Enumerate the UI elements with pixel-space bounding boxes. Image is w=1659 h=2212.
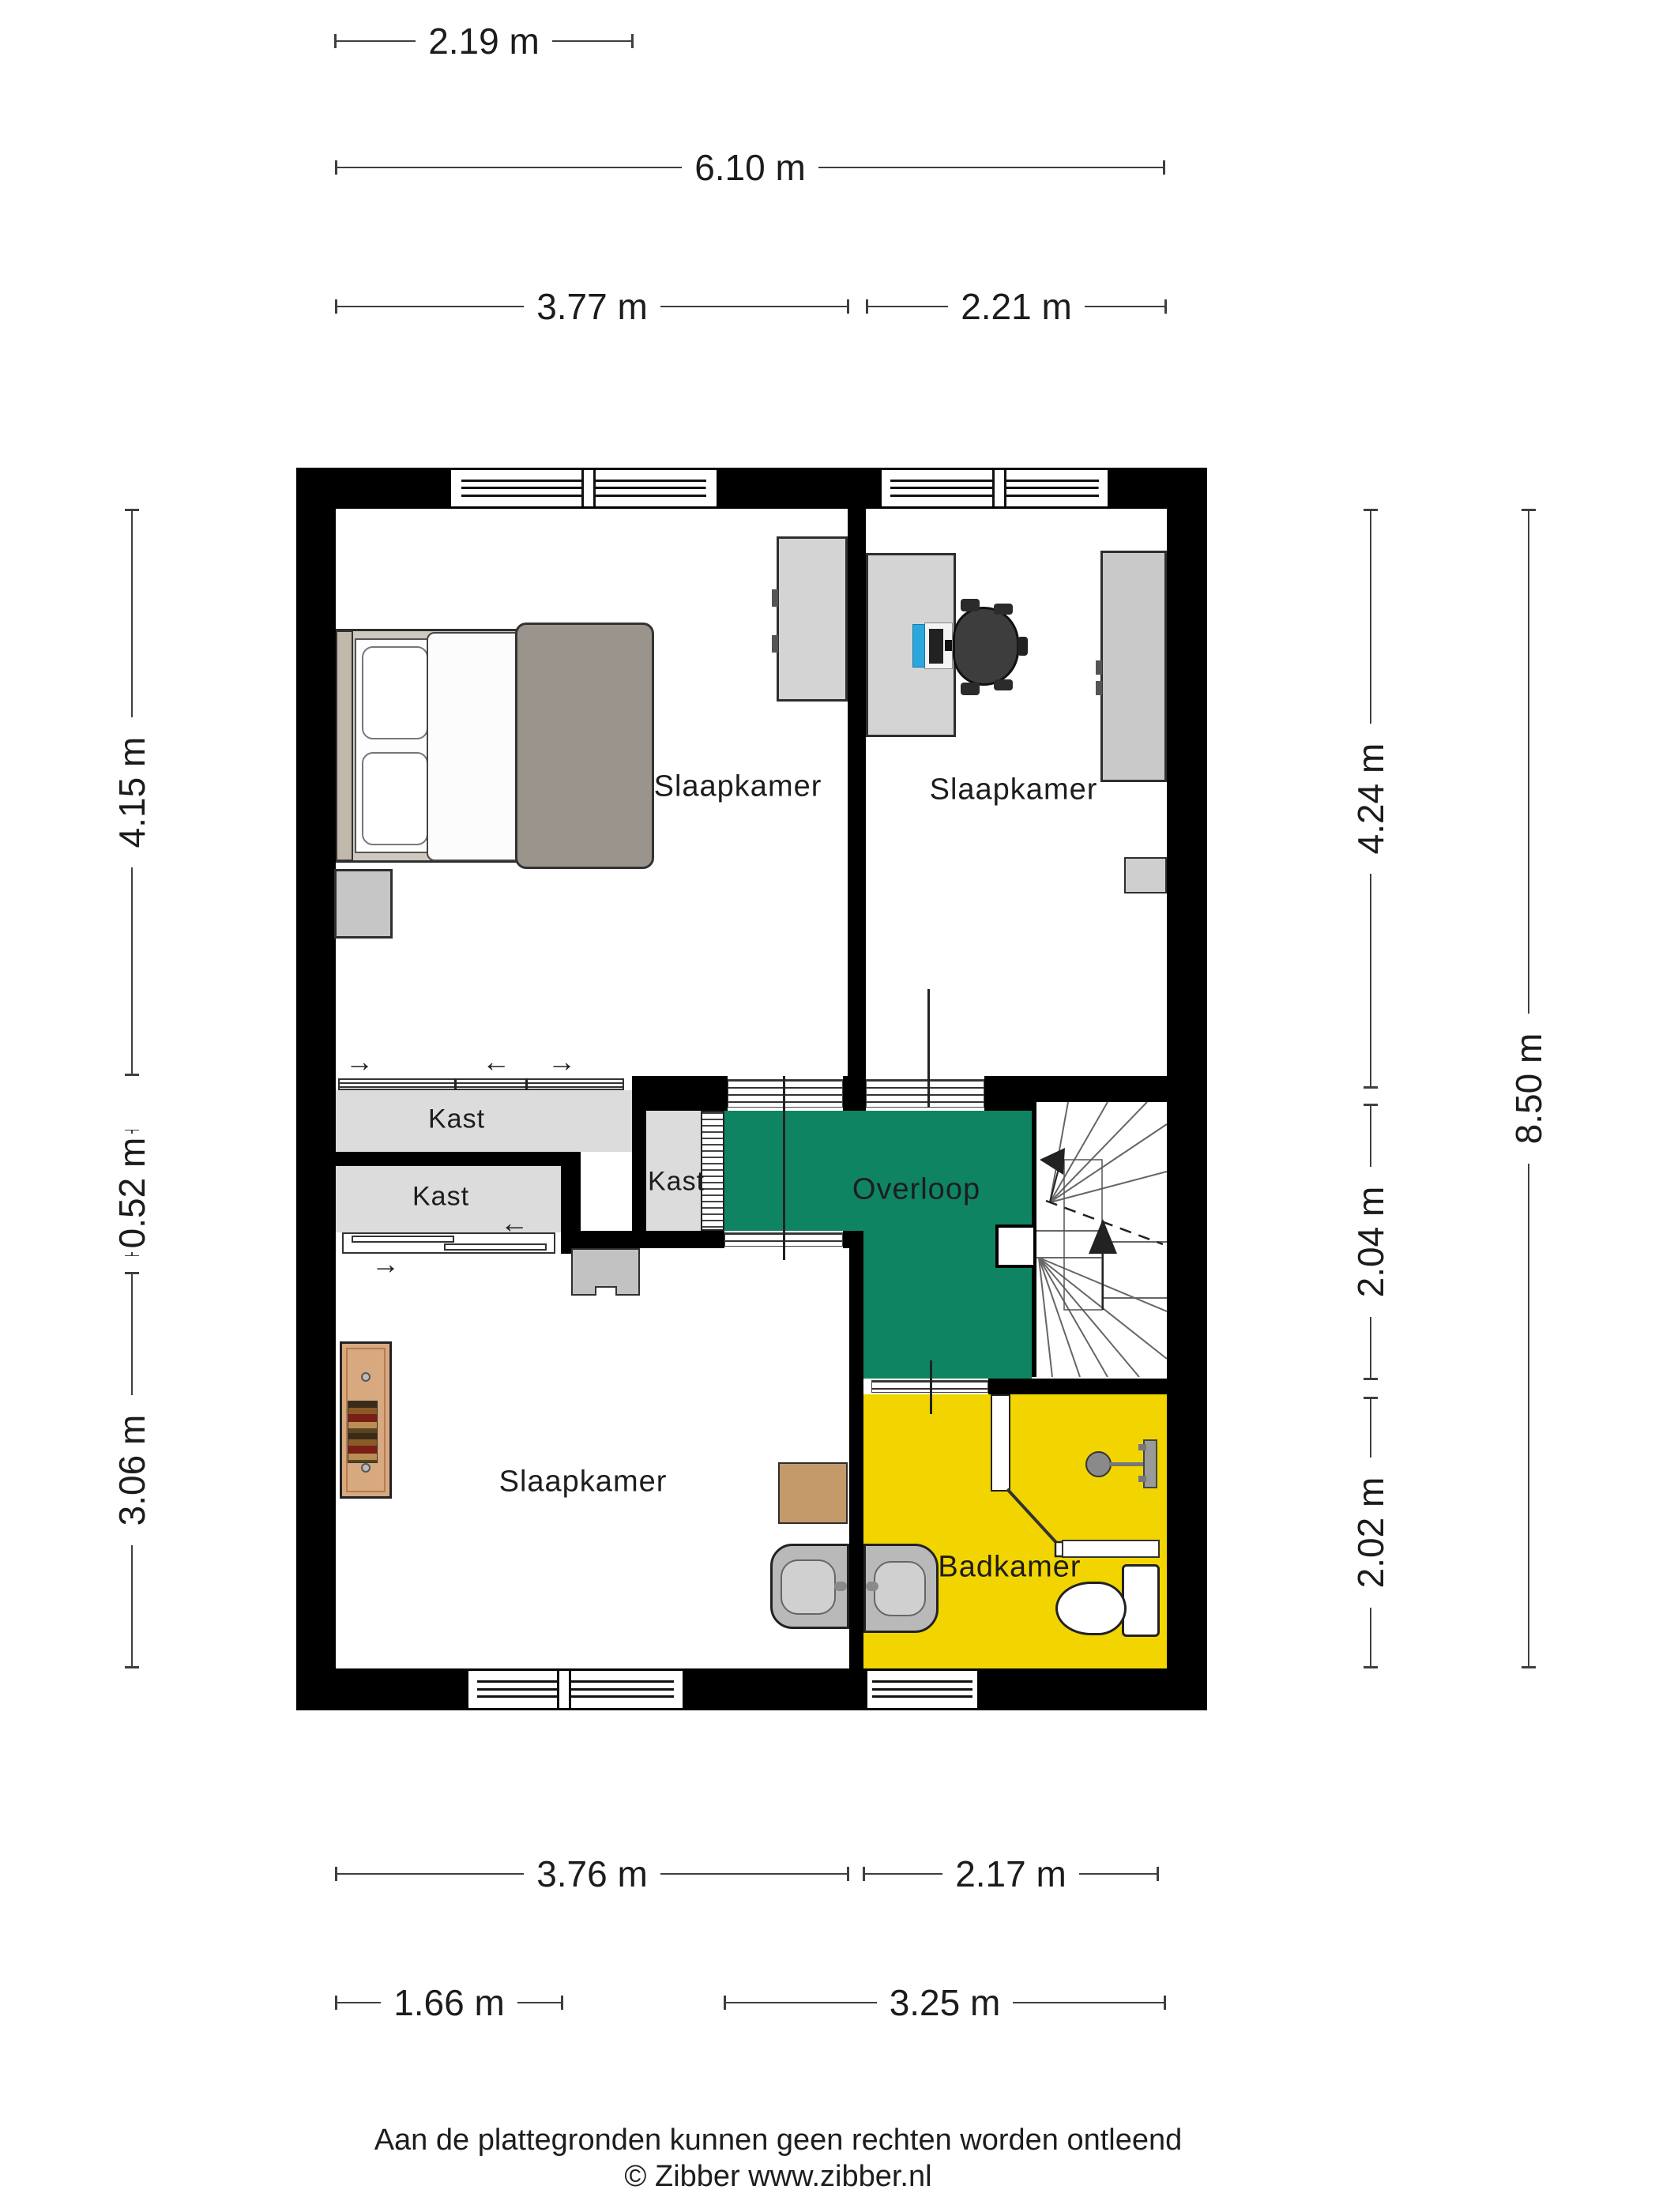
floorplan-page: 2.19 m 6.10 m 3.77 m 2.21 m 4.15 m 0.52 … (0, 0, 1659, 2212)
dim-label: 3.25 m (890, 1981, 1001, 2024)
window-bedroom-topleft (449, 468, 719, 509)
chair-armrest (994, 679, 1013, 690)
footer-disclaimer: Aan de plattegronden kunnen geen rechten… (0, 2124, 1608, 2157)
dim-label: 2.17 m (955, 1853, 1066, 1895)
wall-a-corner (843, 1076, 866, 1111)
door-leaf-line (930, 1360, 932, 1414)
bed-folded-sheet (427, 632, 518, 861)
stair-newel-post (995, 1224, 1036, 1268)
dresser-runner (348, 1401, 378, 1463)
window-glazing (872, 1680, 973, 1698)
stair-up-arrow-icon (1089, 1219, 1117, 1254)
door-bedroom1-landing (728, 1079, 843, 1108)
room-label-bedroom-bottom: Slaapkamer (499, 1465, 668, 1499)
window-mullion (992, 470, 1006, 506)
bed-pillow (362, 646, 428, 739)
slide-arrow-icon: ← (500, 1206, 529, 1240)
chair-caster (1018, 637, 1028, 656)
bed-duvet (515, 623, 654, 869)
dim-label: 8.50 m (1507, 1033, 1550, 1145)
closet-label: Kast (428, 1104, 485, 1135)
dim-label: 0.52 m (111, 1138, 153, 1249)
dim-label: 4.15 m (111, 737, 153, 848)
wardrobe-handle (1096, 660, 1102, 675)
dim-right-202: 2.02 m (1351, 1397, 1390, 1668)
dim-label: 1.66 m (393, 1981, 505, 2024)
window-bedroom-bottom (466, 1668, 685, 1710)
slide-arrow-icon: ← (482, 1045, 510, 1078)
closet-label: Kast (412, 1182, 469, 1213)
shower-mixer-knob (1138, 1444, 1146, 1450)
dim-label: 2.02 m (1349, 1477, 1392, 1589)
dim-top-221: 2.21 m (866, 287, 1167, 326)
dim-bottom-325: 3.25 m (724, 1983, 1166, 2022)
dim-left-306: 3.06 m (112, 1272, 152, 1668)
window-bathroom (865, 1668, 980, 1710)
dim-label: 3.77 m (536, 285, 648, 328)
faucet-icon (866, 1582, 878, 1591)
slide-arrow-icon: → (547, 1045, 576, 1078)
staircase (1032, 1102, 1167, 1377)
slide-arrow-icon: → (345, 1045, 374, 1078)
dim-label: 3.06 m (111, 1415, 153, 1526)
dim-label: 2.21 m (961, 285, 1072, 328)
window-glazing (477, 1680, 674, 1698)
room-label-bedroom-topright: Slaapkamer (930, 773, 1098, 807)
stair-direction-arrow-icon (1040, 1148, 1065, 1175)
dim-top-377: 3.77 m (335, 287, 849, 326)
room-landing (724, 1111, 1032, 1231)
window-mullion (557, 1671, 571, 1708)
door-leaf-line (783, 1076, 785, 1260)
dresser-gray-notch (595, 1286, 617, 1296)
side-table-wood (778, 1462, 848, 1524)
dim-label: 2.19 m (428, 20, 540, 62)
shower-arm (1109, 1462, 1144, 1466)
kast2-door-panel (352, 1236, 454, 1243)
room-label-bedroom-topleft: Slaapkamer (654, 770, 822, 804)
kast2-door-panel (444, 1243, 547, 1251)
wardrobe (1100, 551, 1167, 782)
footer-copyright: © Zibber www.zibber.nl (0, 2160, 1608, 2194)
kast1-door-tick (525, 1078, 528, 1090)
dim-label: 3.76 m (536, 1853, 648, 1895)
washbasin-bedroom-bowl (781, 1559, 836, 1615)
desk-handle (772, 635, 778, 653)
chair-armrest (961, 683, 980, 695)
wall-bedroom3-right (849, 1248, 863, 1668)
desk-bedroom-topleft (777, 536, 848, 702)
wall-kast1-right (632, 1076, 646, 1231)
wardrobe-handle (1096, 681, 1102, 695)
door-bedroom2-landing (866, 1079, 984, 1108)
kast1-sliding-door (338, 1078, 624, 1090)
door-leaf-line (927, 989, 930, 1108)
toilet-bowl-icon (1055, 1582, 1127, 1635)
dim-right-204: 2.04 m (1351, 1104, 1390, 1380)
nightstand (334, 869, 393, 939)
dim-bottom-217: 2.17 m (863, 1854, 1159, 1894)
wall-a-mid (632, 1076, 728, 1111)
dim-label: 4.24 m (1349, 743, 1392, 855)
dim-right-424: 4.24 m (1351, 509, 1390, 1089)
dim-right-850: 8.50 m (1509, 509, 1548, 1668)
radiator (1124, 857, 1167, 893)
office-chair-icon (953, 607, 1019, 686)
shower-glass-panel (991, 1394, 1010, 1492)
dim-bottom-166: 1.66 m (335, 1983, 563, 2022)
wall-bathroom-top (988, 1379, 1167, 1394)
dresser-knob (361, 1463, 371, 1473)
faucet-icon (834, 1582, 847, 1591)
shower-mixer-knob (1138, 1476, 1146, 1482)
dim-top-219: 2.19 m (334, 21, 634, 61)
laptop-keyboard (929, 629, 943, 664)
shower-tray-edge (1062, 1540, 1160, 1558)
shower-head-icon (1085, 1451, 1112, 1477)
dim-label: 2.04 m (1349, 1187, 1392, 1298)
dim-label: 6.10 m (694, 146, 806, 189)
wall-under-kast1 (336, 1152, 570, 1166)
dim-left-415: 4.15 m (112, 509, 152, 1076)
wall-b-corner (843, 1231, 863, 1248)
desk-handle (772, 589, 778, 607)
laptop-screen (912, 624, 925, 668)
wall-bedroom-divider (848, 509, 866, 1076)
room-label-landing: Overloop (852, 1173, 980, 1207)
chair-armrest (994, 604, 1013, 615)
window-mullion (581, 470, 596, 506)
toilet-cistern (1122, 1564, 1160, 1637)
wall-b (561, 1231, 724, 1248)
dim-bottom-376: 3.76 m (335, 1854, 849, 1894)
dresser-knob (361, 1372, 371, 1382)
closet-label: Kast (648, 1167, 705, 1198)
chair-armrest (961, 599, 980, 611)
window-bedroom-topright (879, 468, 1110, 509)
mouse-icon (945, 640, 952, 651)
sink-bathroom-bowl (874, 1561, 926, 1616)
bed-headboard (336, 630, 353, 861)
bed-pillow (362, 752, 428, 845)
dim-left-052: 0.52 m (112, 1130, 152, 1256)
slide-arrow-icon: → (371, 1247, 400, 1281)
dim-top-610: 6.10 m (335, 148, 1165, 187)
kast1-door-tick (454, 1078, 457, 1090)
